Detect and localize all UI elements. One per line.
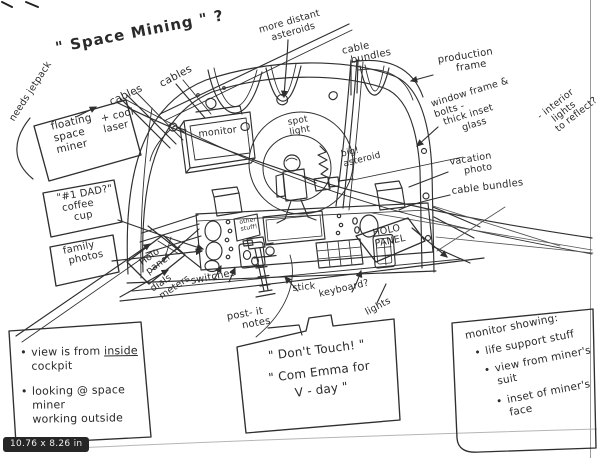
note-looking-at-miner: looking @ space miner working outside <box>21 382 146 427</box>
corner-scribbles <box>2 2 38 7</box>
canvas-size-badge: 10.76 x 8.26 in <box>3 437 89 452</box>
big-asteroid-squiggle <box>318 146 329 178</box>
drawing-canvas[interactable]: " Space Mining " ? needs jetpack cables … <box>0 0 600 458</box>
label-spot-light: spot light <box>287 114 311 137</box>
note-view-from: view is from inside cockpit <box>20 344 144 375</box>
callout-view-notes: view is from inside cockpit looking @ sp… <box>20 338 146 428</box>
